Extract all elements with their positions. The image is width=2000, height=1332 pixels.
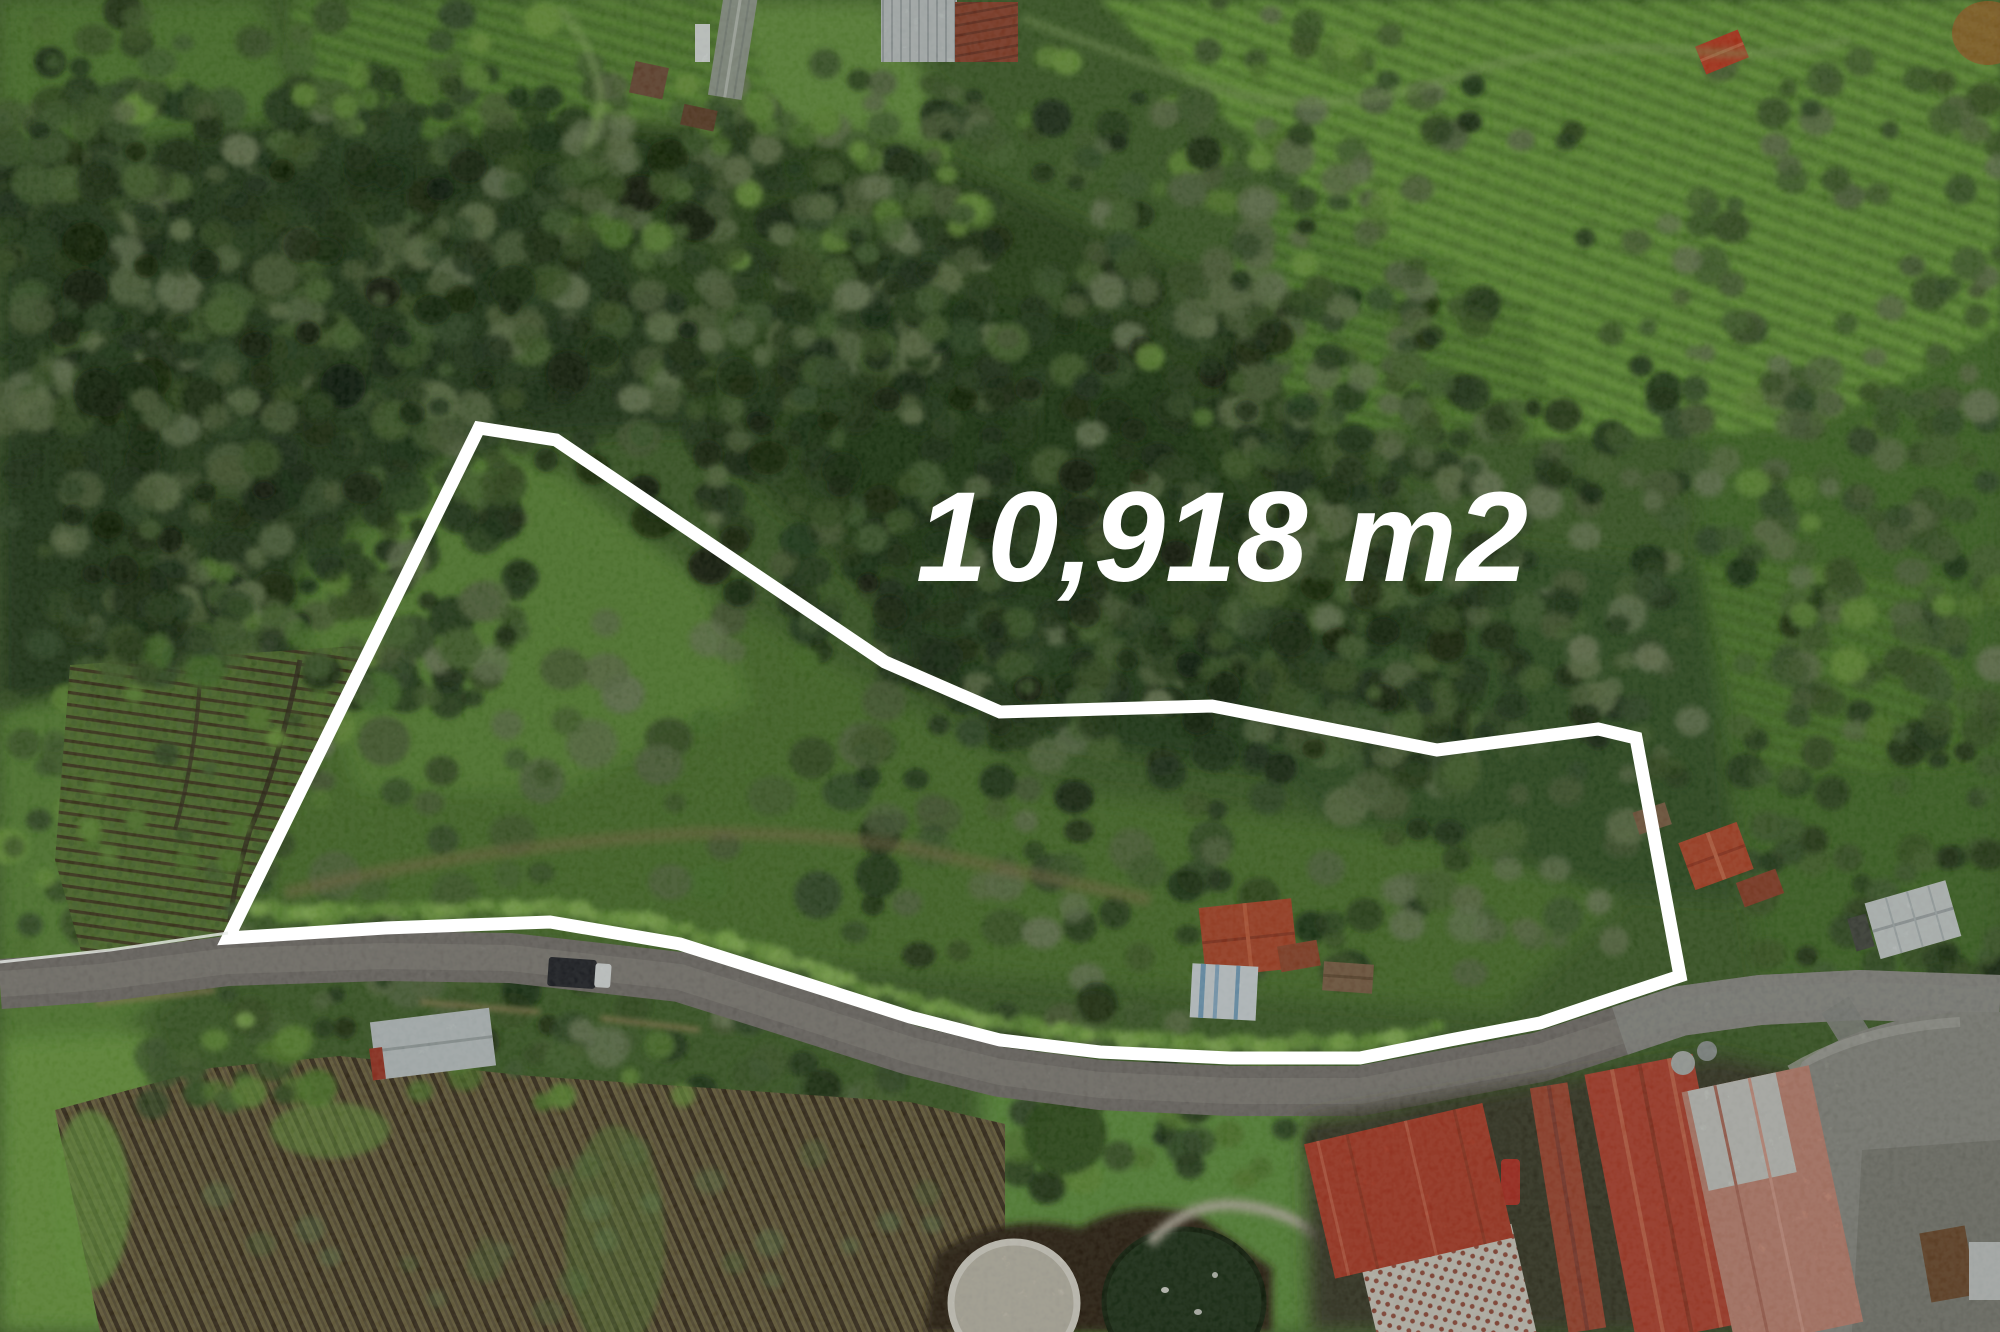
svg-text:10,918 m2: 10,918 m2	[916, 466, 1528, 609]
